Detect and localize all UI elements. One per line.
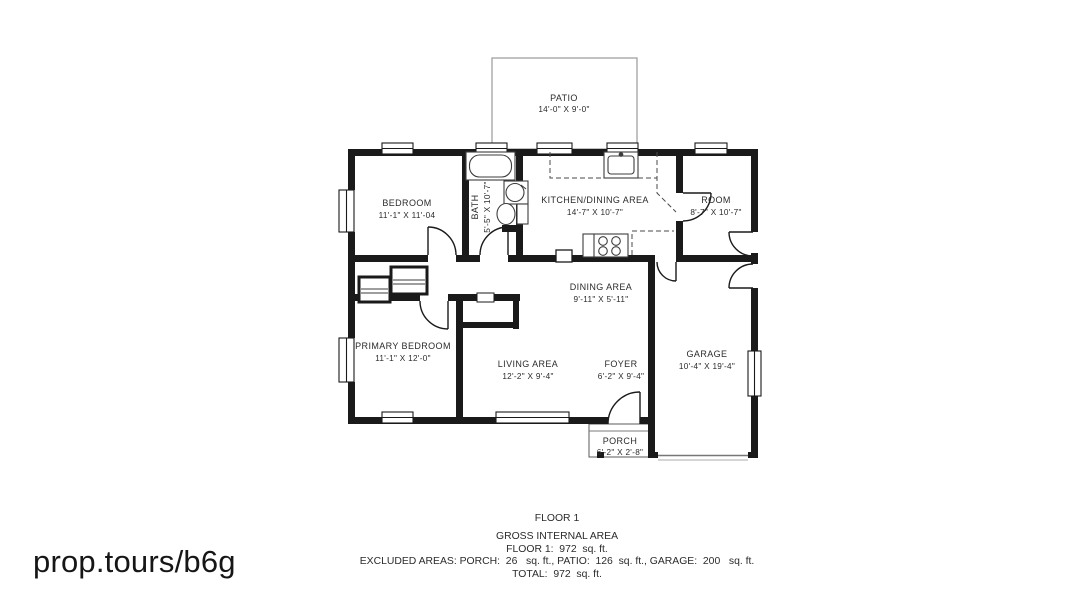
toilet — [497, 204, 528, 225]
room-dims-bath: 5'-5" X 10'-7" — [483, 181, 492, 232]
floor-title: FLOOR 1 — [197, 513, 917, 524]
room-dims-kitchen-dining: 14'-7" X 10'-7" — [567, 208, 623, 217]
total-area: TOTAL: 972 sq. ft. — [197, 569, 917, 580]
floor1-area: FLOOR 1: 972 sq. ft. — [197, 544, 917, 555]
bathtub — [466, 152, 515, 180]
patio-outline — [492, 58, 637, 149]
excluded-areas: EXCLUDED AREAS: PORCH: 26 sq. ft., PATIO… — [197, 556, 917, 567]
room-label-porch: PORCH — [603, 436, 638, 446]
gross-internal-area-label: GROSS INTERNAL AREA — [197, 531, 917, 542]
room-label-living: LIVING AREA — [498, 359, 558, 369]
stove — [583, 234, 628, 257]
room-dims-dining: 9'-11" X 5'-11" — [573, 295, 628, 304]
room-label-kitchen-dining: KITCHEN/DINING AREA — [541, 195, 649, 205]
room-dims-primary-bedroom: 11'-1" X 12'-0" — [375, 354, 431, 363]
room-label-room: ROOM — [701, 195, 731, 205]
room-label-bath: BATH — [470, 195, 480, 220]
room-label-patio: PATIO — [550, 93, 578, 103]
room-dims-foyer: 6'-2" X 9'-4" — [598, 372, 645, 381]
room-label-dining: DINING AREA — [570, 282, 632, 292]
room-label-garage: GARAGE — [687, 349, 728, 359]
tour-link-watermark: prop.tours/b6g — [33, 545, 236, 578]
room-dims-living: 12'-2" X 9'-4" — [502, 372, 553, 381]
room-dims-garage: 10'-4" X 19'-4" — [679, 362, 735, 371]
room-dims-patio: 14'-0" X 9'-0" — [538, 105, 589, 114]
garage-door — [658, 456, 748, 461]
bath-sink — [504, 181, 528, 204]
room-dims-room: 8'-7" X 10'-7" — [690, 208, 741, 217]
kitchen-sink — [604, 152, 638, 178]
area-summary: FLOOR 1 GROSS INTERNAL AREA FLOOR 1: 972… — [197, 513, 917, 580]
room-label-bedroom: BEDROOM — [382, 198, 431, 208]
doors — [420, 193, 753, 424]
room-dims-porch: 6'-2" X 2'-8" — [597, 448, 644, 457]
room-label-foyer: FOYER — [604, 359, 637, 369]
room-dims-bedroom: 11'-1" X 11'-04 — [379, 211, 436, 220]
room-label-primary-bedroom: PRIMARY BEDROOM — [355, 341, 451, 351]
